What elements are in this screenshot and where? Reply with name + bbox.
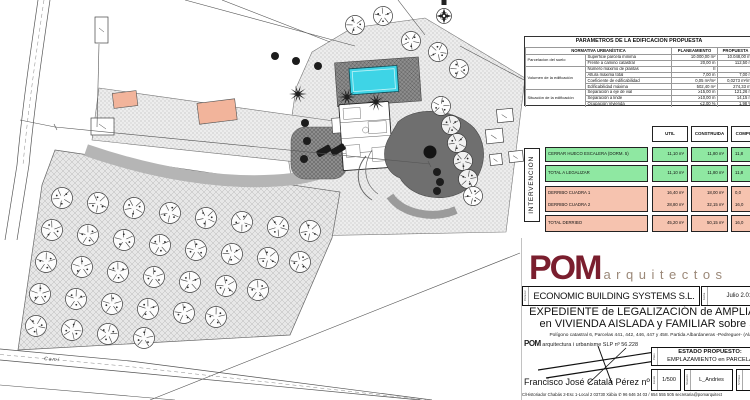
bush-symbol [433, 187, 441, 195]
tree-symbol [374, 7, 393, 26]
fecha-value: Julio 2.015 [708, 287, 750, 305]
param-plan-value: ≤2,00 % [671, 101, 717, 107]
num-plano-box: Nº Plano [736, 369, 750, 391]
intervencion-construida: 11,80 m² [691, 165, 728, 182]
derribo-1-computable: 0,0 [735, 187, 750, 199]
neighbour-building [485, 128, 503, 144]
num-plano-value [743, 370, 750, 390]
tree-symbol [232, 212, 253, 233]
derribo-cuadra-1-label: DERRIBO CUADRA 1 [546, 187, 647, 199]
intervencion-side-label: INTERVENCION [524, 148, 540, 222]
tree-symbol [98, 324, 119, 345]
tree-symbol [160, 203, 181, 224]
col-header-normativa: NORMATIVA URBANÍSTICA [525, 47, 671, 54]
tree-symbol [442, 116, 461, 135]
intervencion-util: 16,40 m² 28,80 m² [652, 186, 688, 212]
pom-tagline: arquitectos [603, 267, 727, 282]
tree-symbol [150, 235, 171, 256]
tree-symbol [138, 299, 159, 320]
derribo-2-computable: 16,0 [735, 199, 750, 211]
tree-symbol [290, 252, 311, 273]
col-header-construida: CONSTRUIDA [691, 126, 728, 142]
intervencion-row-label: CERRAR HUECO ESCALERA (DORM. 5) [545, 147, 648, 162]
escala-value: 1/500 [658, 370, 680, 390]
intervencion-construida: 18,00 m² 32,15 m² [691, 186, 728, 212]
tree-symbol [62, 320, 83, 341]
tree-symbol [36, 252, 57, 273]
intervencion-util: 11,10 m² [652, 147, 688, 162]
tree-symbol [180, 272, 201, 293]
tree-symbol [114, 230, 135, 251]
tree-symbol [258, 248, 279, 269]
tree-symbol [88, 193, 109, 214]
param-group: Situación de la edificación [525, 89, 585, 107]
tree-symbol [346, 16, 365, 35]
param-prop-value: 1,98 % [717, 101, 750, 107]
intervencion-util: 45,20 m² [652, 215, 688, 232]
tree-symbol [102, 294, 123, 315]
tree-symbol [108, 262, 129, 283]
promotor-label: Promotor [523, 287, 529, 305]
drawing-sheet: Camí PARAMETROS DE LA EDIFICACION PROPUE… [0, 0, 750, 400]
tree-symbol [454, 152, 473, 171]
derribo-1-construida: 18,00 m² [692, 187, 727, 199]
bush-symbol [433, 168, 441, 176]
tree-symbol [144, 267, 165, 288]
parametros-table: PARAMETROS DE LA EDIFICACION PROPUESTA N… [524, 36, 750, 106]
tree-symbol [66, 289, 87, 310]
param-group: Volumen de la edificación [525, 66, 585, 89]
tree-symbol [432, 97, 451, 116]
tree-symbol [216, 276, 237, 297]
tree-symbol [134, 328, 155, 349]
bush-symbol [301, 119, 309, 127]
tree-symbol [459, 170, 478, 189]
parametros-title: PARAMETROS DE LA EDIFICACION PROPUESTA [525, 37, 750, 47]
project-title-line2: en VIVIENDA AISLADA y FAMILIAR sobre SNU [521, 318, 750, 330]
tree-symbol [300, 221, 321, 242]
tree-symbol [72, 257, 93, 278]
col-header-computable: COMPUTABLE [731, 126, 750, 142]
bush-symbol [271, 52, 279, 60]
neighbour-building [489, 153, 502, 165]
col-header-propuesta: PROPUESTA [717, 47, 750, 54]
intervencion-computable: 16,0 [731, 215, 750, 232]
tree-symbol [464, 187, 483, 206]
promotor-value: ECONOMIC BUILDING SYSTEMS S.L. [529, 287, 699, 305]
plano-box: Plano ESTADO PROPUESTO: EMPLAZAMIENTO en… [651, 347, 750, 366]
tree-symbol [429, 43, 448, 62]
pom-wordmark: POM [529, 249, 600, 288]
intervencion-row-label: TOTAL DERRIBO [545, 215, 648, 232]
referencia-label: Situación [685, 370, 691, 390]
tree-symbol [30, 284, 51, 305]
fecha-box: Fecha Julio 2.015 [701, 286, 750, 306]
road-label: Camí [44, 356, 60, 363]
tree-symbol [248, 280, 269, 301]
col-header-planeamiento: PLANEAMIENTO [671, 47, 717, 54]
estado-line2: EMPLAZAMIENTO en PARCELA [667, 357, 750, 365]
fecha-label: Fecha [702, 287, 708, 305]
escala-label: Escala [652, 370, 658, 390]
col-header-util: UTIL [652, 126, 688, 142]
project-location: Polígono catastral 6, Parcelas 441, 442,… [521, 333, 750, 338]
referencia-value: L_Andries [691, 370, 732, 390]
referencia-box: Situación L_Andries [684, 369, 733, 391]
tree-symbol [174, 303, 195, 324]
bush-symbol [314, 62, 322, 70]
neighbour-building [496, 108, 513, 123]
escala-box: Escala 1/500 [651, 369, 681, 391]
param-label: Ocupación Vivienda [585, 101, 671, 107]
intervencion-util: 11,10 m² [652, 165, 688, 182]
tree-symbol [268, 217, 289, 238]
intervencion-construida: 11,80 m² [691, 147, 728, 162]
intervencion-side-text: INTERVENCION [529, 156, 536, 214]
neighbour-building [508, 150, 523, 162]
tree-symbol [186, 240, 207, 261]
derribo-2-construida: 32,15 m² [692, 199, 727, 211]
bush-symbol [436, 178, 444, 186]
tree-symbol [206, 307, 227, 328]
north-compass-icon [437, 0, 452, 24]
num-plano-label: Nº Plano [737, 370, 743, 390]
tree-symbol [450, 60, 469, 79]
tree-symbol [52, 188, 73, 209]
pom-logo: POM arquitectos [529, 249, 728, 288]
intervencion-computable: 11,8 [731, 165, 750, 182]
intervencion-row-label: TOTAL A LEGALIZAR [545, 165, 648, 182]
project-title-line1: EXPEDIENTE de LEGALIZACIÓN de AMPLIACIÓN [521, 306, 750, 318]
tree-symbol [78, 225, 99, 246]
derribo-cuadra-2-label: DERRIBO CUADRA 2 [546, 199, 647, 211]
tree-symbol [402, 32, 421, 51]
bush-symbol [292, 57, 300, 65]
bush-symbol [303, 137, 311, 145]
intervencion-computable: 0,0 16,0 [731, 186, 750, 212]
promotor-box: Promotor ECONOMIC BUILDING SYSTEMS S.L. [522, 286, 700, 306]
bush-symbol [300, 155, 308, 163]
tree-symbol [42, 220, 63, 241]
intervencion-row-label: DERRIBO CUADRA 1 DERRIBO CUADRA 2 [545, 186, 648, 212]
plano-label: Plano [652, 348, 658, 365]
tree-symbol [222, 244, 243, 265]
param-group: Parcelacion del suelo [525, 54, 585, 66]
contact-line: C/Historiador Chabás 2-Esc 1-Local 2 037… [522, 392, 750, 397]
tree-symbol [196, 208, 217, 229]
estado-line1: ESTADO PROPUESTO: [678, 349, 742, 357]
intervencion-construida: 50,15 m² [691, 215, 728, 232]
intervencion-computable: 11,8 [731, 147, 750, 162]
tree-symbol [26, 316, 47, 337]
tree-symbol [124, 198, 145, 219]
derribo-1-util: 16,40 m² [653, 187, 687, 199]
project-title: EXPEDIENTE de LEGALIZACIÓN de AMPLIACIÓN… [521, 306, 750, 338]
tree-symbol [448, 134, 467, 153]
derribo-2-util: 28,80 m² [653, 199, 687, 211]
